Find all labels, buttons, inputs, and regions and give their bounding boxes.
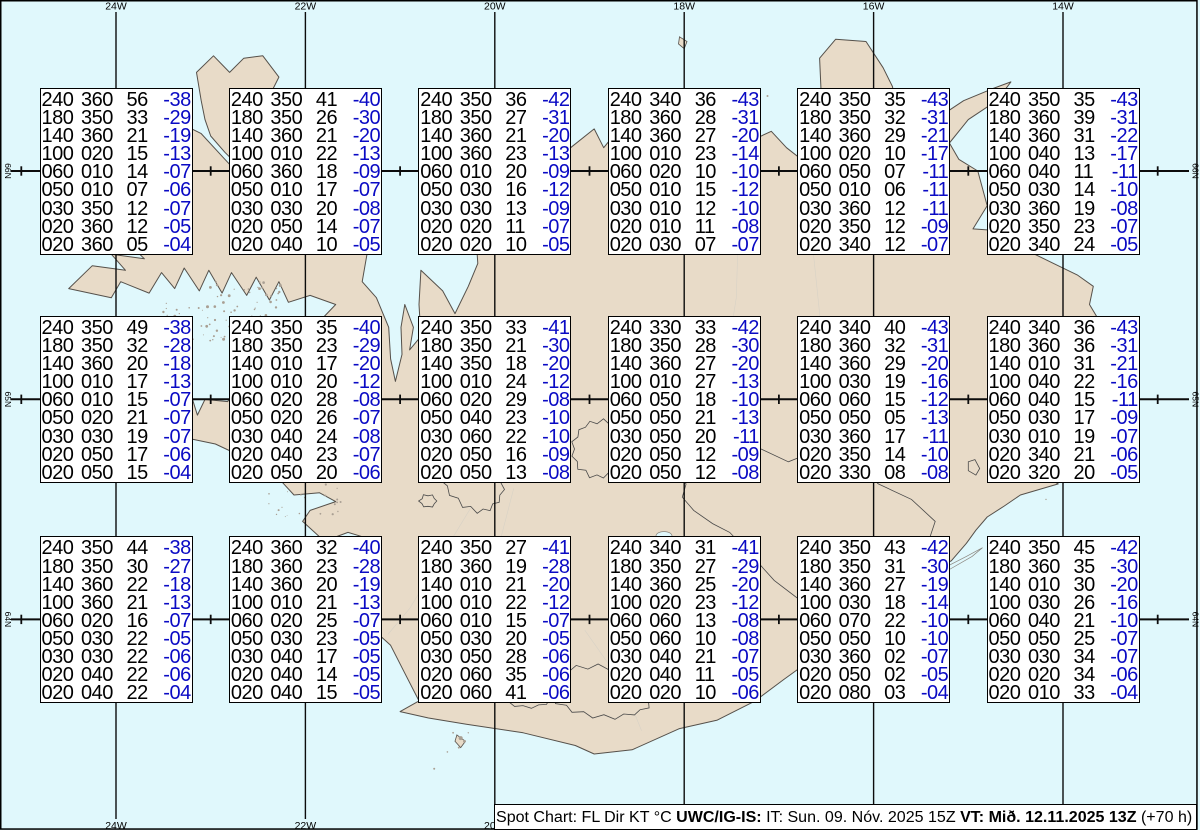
svg-text:64N: 64N <box>1190 612 1200 628</box>
svg-text:24W: 24W <box>105 1 127 13</box>
svg-text:14W: 14W <box>1052 1 1074 13</box>
svg-text:16W: 16W <box>863 1 885 13</box>
svg-text:22W: 22W <box>295 1 317 13</box>
svg-text:64N: 64N <box>3 612 13 628</box>
svg-text:18W: 18W <box>673 1 695 13</box>
svg-text:66N: 66N <box>3 163 13 179</box>
svg-text:66N: 66N <box>1190 163 1200 179</box>
svg-text:65N: 65N <box>1190 392 1200 408</box>
svg-text:20W: 20W <box>484 1 506 13</box>
svg-text:65N: 65N <box>3 392 13 408</box>
